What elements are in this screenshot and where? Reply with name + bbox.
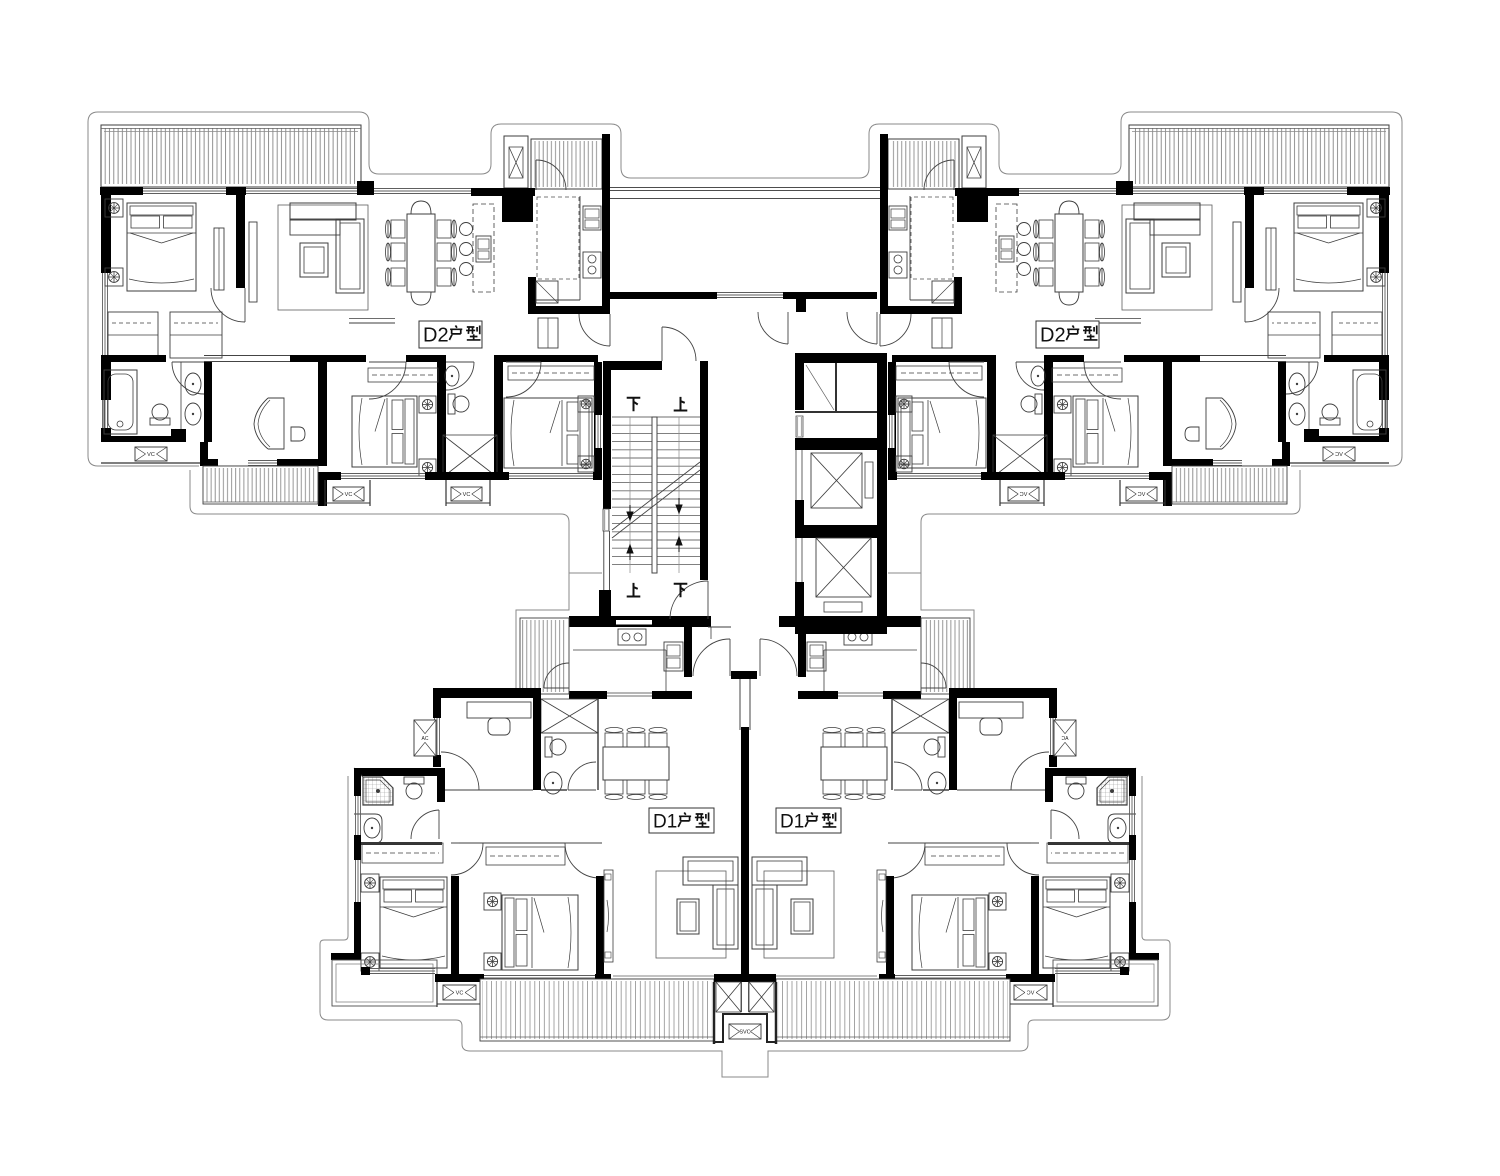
svg-text:D1: D1 <box>780 811 804 832</box>
svg-text:VC: VC <box>463 492 471 498</box>
svg-text:SVC: SVC <box>739 1029 750 1035</box>
svg-text:D2: D2 <box>423 325 449 347</box>
svg-text:D2: D2 <box>1040 325 1066 347</box>
svg-text:D1: D1 <box>653 811 677 832</box>
svg-text:VC: VC <box>345 492 353 498</box>
svg-text:VC: VC <box>456 990 464 996</box>
svg-text:VC: VC <box>147 452 155 458</box>
svg-text:AC: AC <box>422 736 429 742</box>
